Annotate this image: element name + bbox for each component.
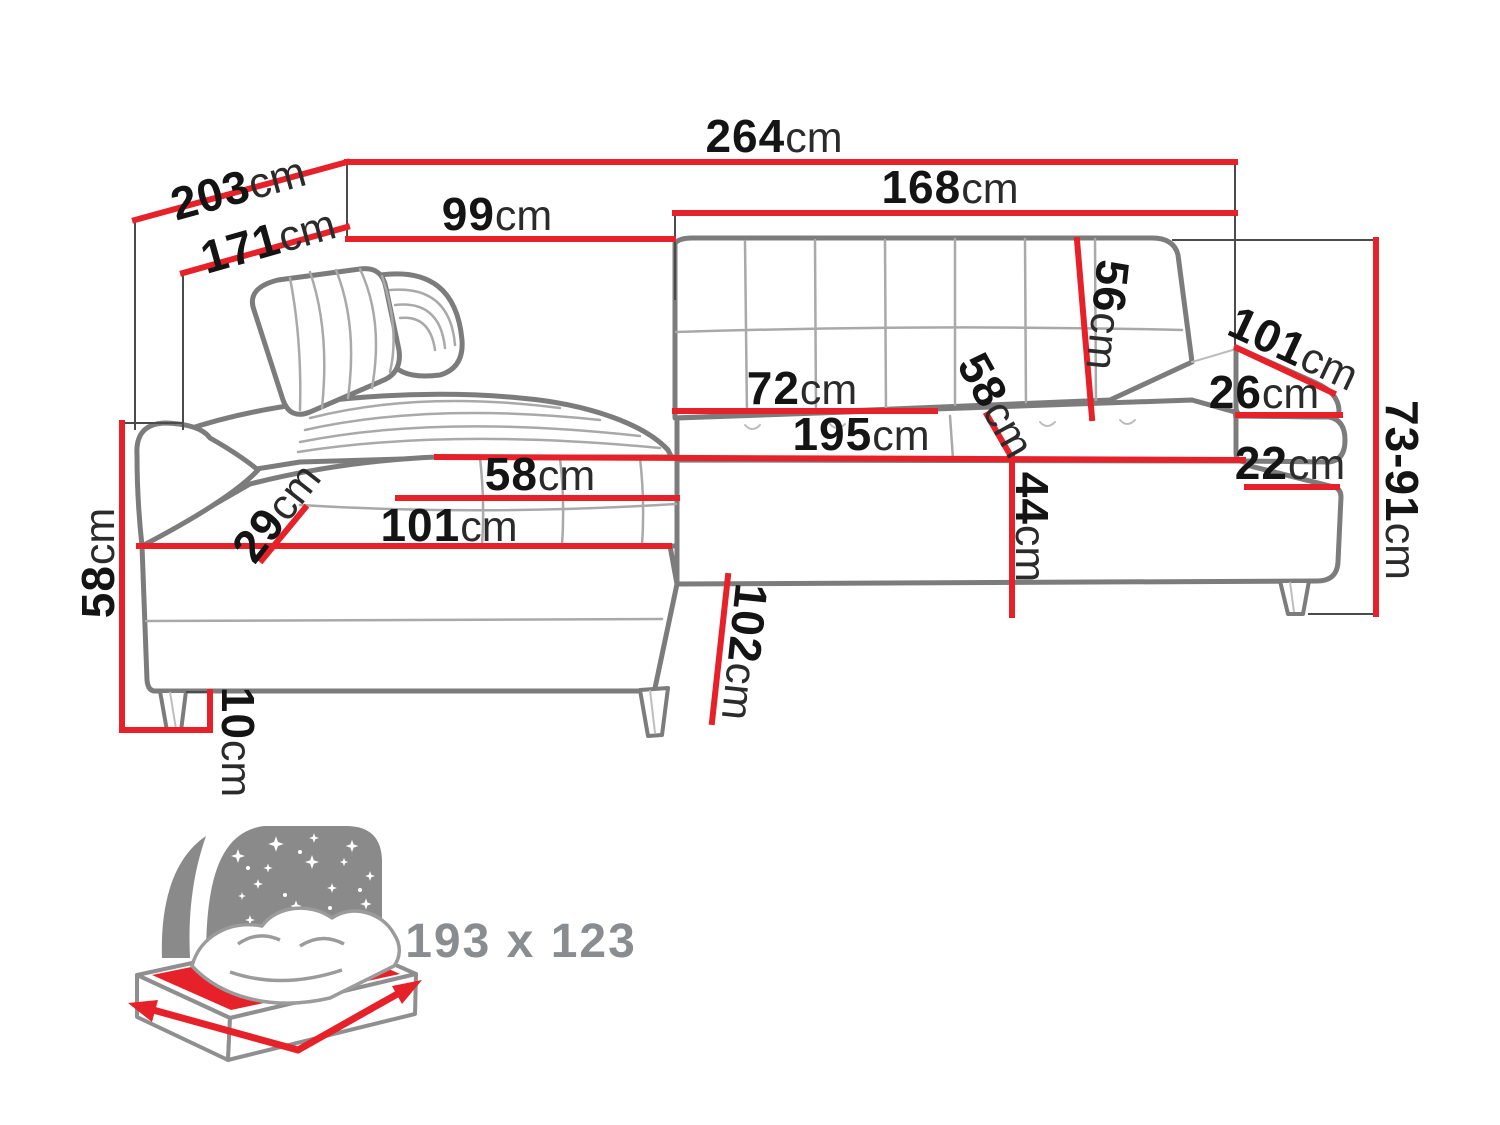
sleeping-area-size: 193 x 123 (405, 915, 637, 968)
sofa-dimension-diagram: 264cm 203cm 171cm 99cm 168cm 56cm 101cm … (0, 0, 1500, 1125)
dim-label-width-right-section: 168cm (881, 161, 1018, 213)
dim-label-chaise-front-length: 102cm (712, 581, 778, 723)
dim-label-leg-height: 10cm (212, 687, 264, 798)
dim-label-chaise-length: 101cm (380, 499, 517, 551)
dim-label-sleeping-length: 195cm (792, 408, 929, 460)
sofa-headrest-pillow (252, 269, 399, 415)
dim-label-armrest-base-width: 22cm (1235, 437, 1346, 489)
dim-label-height-range: 73-91cm (1376, 400, 1428, 580)
dim-label-back-width-left: 99cm (442, 188, 553, 240)
dim-label-seat-width: 72cm (747, 362, 858, 414)
dim-label-side-height: 58cm (72, 508, 124, 619)
night-sky-swoosh (162, 836, 206, 958)
dim-label-armrest-top-width: 26cm (1209, 366, 1320, 418)
dim-label-seat-depth-left: 58cm (485, 448, 596, 500)
dim-label-seat-height: 44cm (1006, 472, 1058, 583)
dim-label-width-total: 264cm (705, 110, 842, 162)
sofa-bed-icon: 193 x 123 (128, 826, 637, 1060)
diagram-canvas: 264cm 203cm 171cm 99cm 168cm 56cm 101cm … (0, 0, 1500, 1125)
